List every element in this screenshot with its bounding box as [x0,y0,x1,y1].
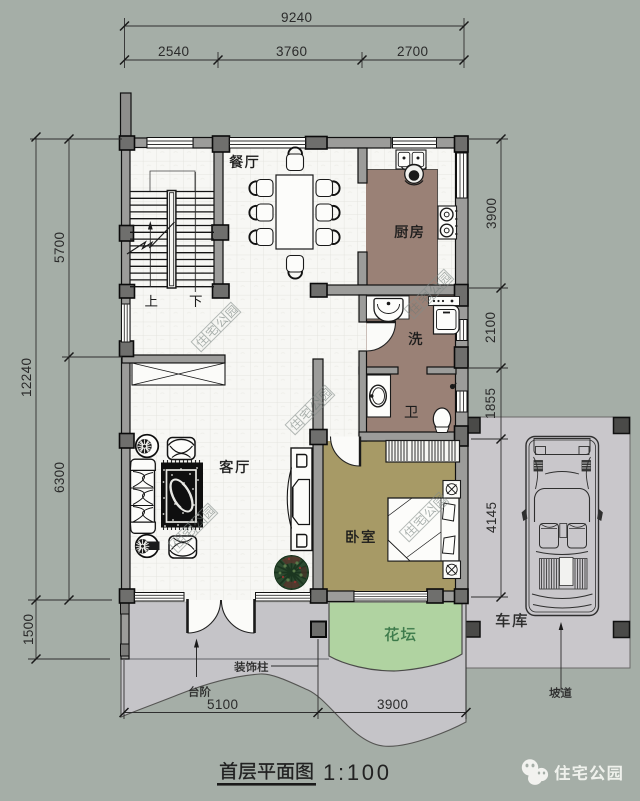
svg-text:3760: 3760 [276,44,307,59]
svg-text:9240: 9240 [281,10,312,25]
svg-text:2540: 2540 [158,44,189,59]
svg-text:6300: 6300 [52,462,67,493]
svg-text:12240: 12240 [19,358,34,397]
svg-text:1500: 1500 [21,614,36,645]
svg-text:2700: 2700 [397,44,428,59]
svg-text:1:100: 1:100 [323,760,389,785]
svg-text:3900: 3900 [484,198,499,229]
svg-text:3900: 3900 [377,697,408,712]
svg-text:5100: 5100 [207,697,238,712]
svg-text:5700: 5700 [52,232,67,263]
svg-text:4145: 4145 [484,502,499,533]
svg-text:2100: 2100 [483,312,498,343]
svg-text:1855: 1855 [483,388,498,419]
